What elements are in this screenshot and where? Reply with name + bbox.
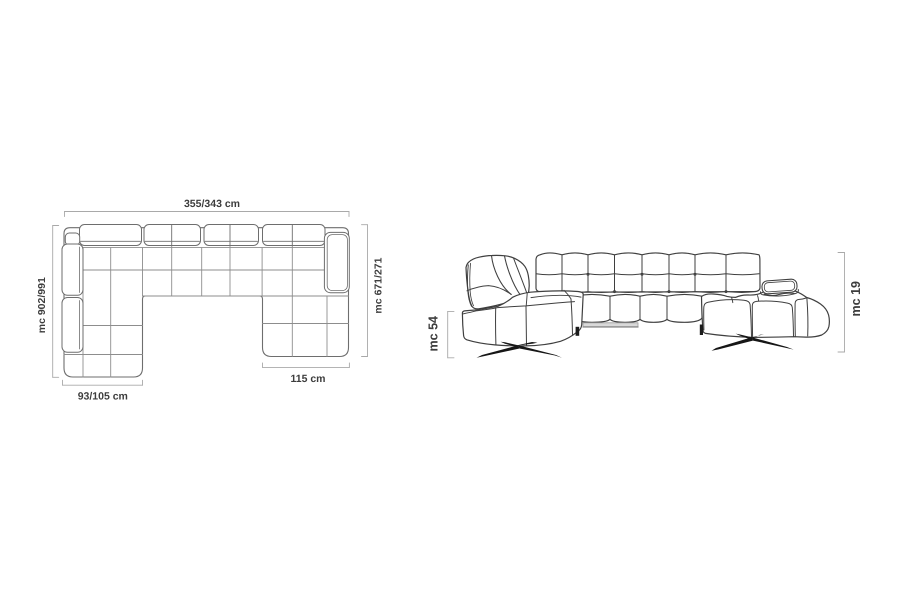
svg-text:m: m — [373, 304, 385, 313]
svg-text:9: 9 — [36, 309, 48, 315]
svg-text:m: m — [849, 305, 863, 316]
svg-text:5: 5 — [426, 323, 440, 330]
svg-text:2: 2 — [373, 269, 385, 275]
svg-text:6: 6 — [373, 289, 385, 295]
svg-text:9: 9 — [849, 281, 863, 288]
svg-text:7: 7 — [373, 263, 385, 269]
svg-text:0: 0 — [36, 303, 48, 309]
svg-text:c: c — [426, 333, 440, 340]
svg-text:9: 9 — [36, 283, 48, 289]
svg-text:1: 1 — [36, 277, 48, 283]
svg-text:1: 1 — [849, 288, 863, 295]
svg-text:93/105 cm: 93/105 cm — [78, 390, 128, 402]
svg-text:c: c — [36, 318, 48, 324]
svg-text:7: 7 — [373, 284, 385, 290]
svg-text:c: c — [849, 298, 863, 305]
svg-text:4: 4 — [426, 316, 440, 323]
svg-text:2: 2 — [36, 298, 48, 304]
svg-text:1: 1 — [373, 257, 385, 263]
svg-text:355/343 cm: 355/343 cm — [184, 198, 240, 210]
svg-text:9: 9 — [36, 289, 48, 295]
svg-text:1: 1 — [373, 278, 385, 284]
svg-text:/: / — [36, 295, 48, 298]
svg-text:m: m — [36, 324, 48, 333]
svg-text:115 cm: 115 cm — [290, 373, 325, 385]
svg-text:/: / — [373, 275, 385, 278]
svg-text:m: m — [426, 340, 440, 351]
svg-text:c: c — [373, 298, 385, 304]
